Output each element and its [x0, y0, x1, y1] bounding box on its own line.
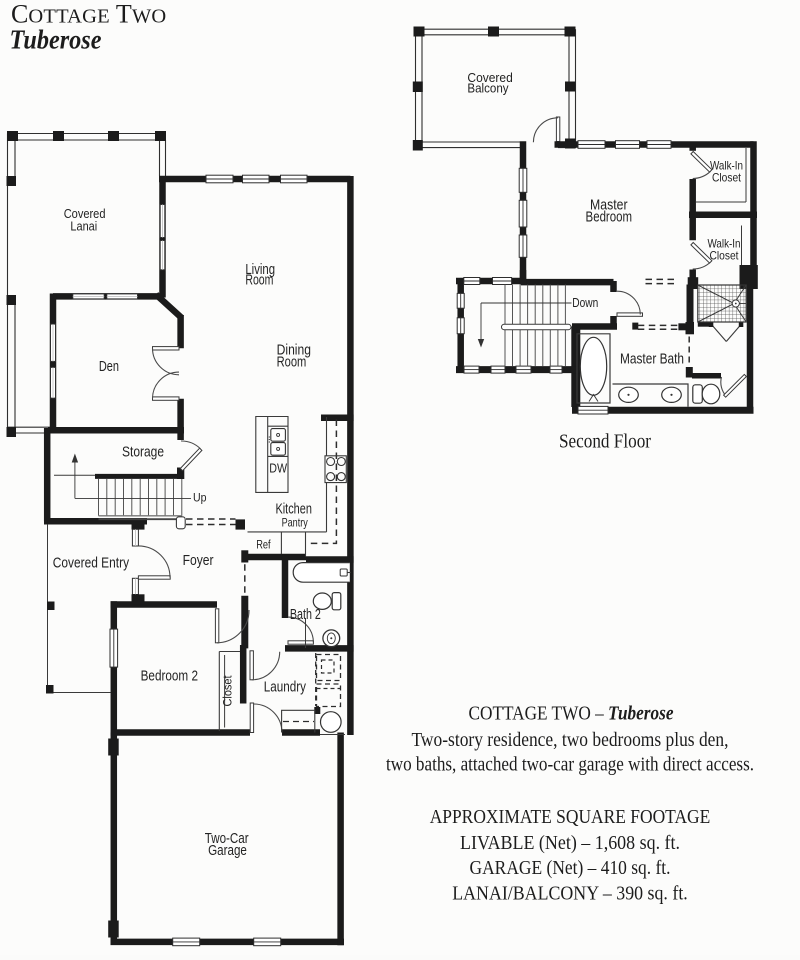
- svg-text:two baths, attached two-car ga: two baths, attached two-car garage with …: [386, 753, 754, 775]
- svg-text:Bath 2: Bath 2: [290, 607, 321, 623]
- svg-text:Bedroom 2: Bedroom 2: [141, 669, 198, 685]
- svg-text:Den: Den: [99, 359, 119, 375]
- svg-text:Closet: Closet: [712, 172, 742, 185]
- svg-text:Laundry: Laundry: [264, 680, 307, 696]
- svg-text:Lanai: Lanai: [70, 219, 97, 234]
- svg-text:GARAGE (Net) – 410 sq. ft.: GARAGE (Net) – 410 sq. ft.: [470, 858, 671, 879]
- svg-text:DW: DW: [269, 460, 288, 475]
- svg-text:APPROXIMATE SQUARE FOOTAGE: APPROXIMATE SQUARE FOOTAGE: [430, 807, 711, 828]
- svg-text:Master Bath: Master Bath: [620, 352, 684, 368]
- svg-text:Balcony: Balcony: [467, 81, 509, 96]
- svg-text:LANAI/BALCONY – 390 sq. ft.: LANAI/BALCONY – 390 sq. ft.: [452, 884, 688, 905]
- svg-text:Closet: Closet: [710, 250, 740, 263]
- svg-text:LIVABLE (Net) – 1,608 sq. ft.: LIVABLE (Net) – 1,608 sq. ft.: [460, 833, 680, 854]
- svg-text:Room: Room: [277, 354, 307, 370]
- svg-text:Ref: Ref: [256, 538, 271, 552]
- svg-text:Two-story residence, two bedro: Two-story residence, two bedrooms plus d…: [412, 729, 729, 751]
- svg-text:Down: Down: [572, 295, 598, 310]
- svg-text:COTTAGE TWO – Tuberose: COTTAGE TWO – Tuberose: [469, 704, 674, 725]
- svg-text:Foyer: Foyer: [183, 553, 214, 569]
- svg-text:Storage: Storage: [122, 445, 164, 461]
- svg-text:Second Floor: Second Floor: [559, 431, 651, 453]
- svg-text:Bedroom: Bedroom: [586, 210, 633, 226]
- svg-text:Closet: Closet: [221, 675, 235, 706]
- svg-text:Covered Entry: Covered Entry: [53, 555, 130, 571]
- svg-text:Room: Room: [245, 273, 273, 289]
- svg-text:Up: Up: [193, 491, 207, 505]
- svg-text:Tuberose: Tuberose: [10, 25, 102, 55]
- svg-text:Garage: Garage: [208, 843, 247, 859]
- svg-text:Pantry: Pantry: [282, 516, 309, 530]
